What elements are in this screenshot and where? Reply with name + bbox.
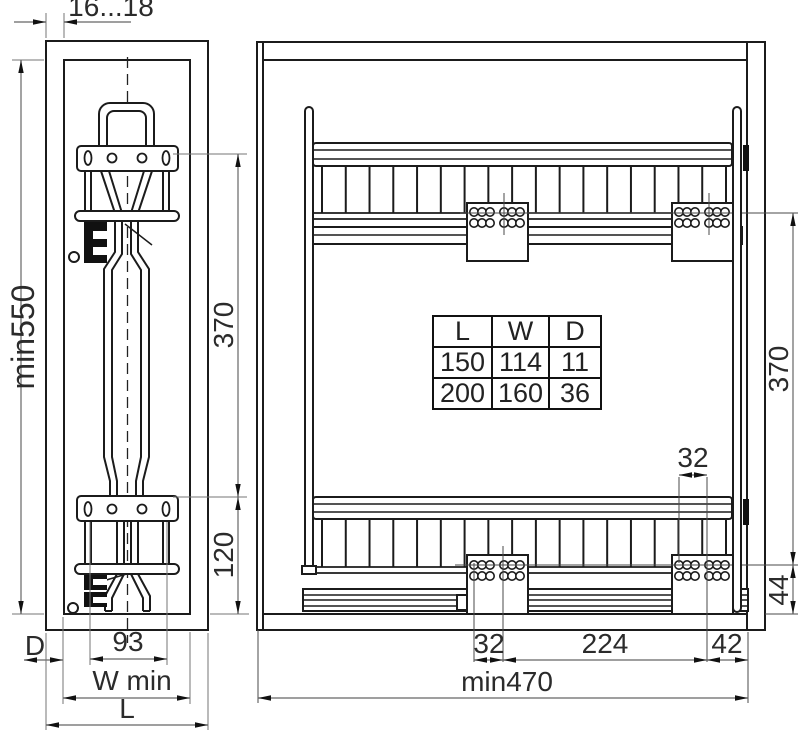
dim-min-depth: min470	[461, 666, 553, 697]
upper-rail-bracket	[84, 222, 107, 263]
size-table-cell: 160	[493, 379, 550, 408]
dim-runner-distance: 370	[763, 346, 794, 393]
dim-length-label: L	[119, 693, 135, 724]
upper-mounting-plate	[77, 146, 178, 171]
size-table-header-l: L	[434, 317, 493, 348]
technical-drawing-page: 16...18 min550 370 120 93 D	[0, 0, 800, 730]
rear-frame-post	[733, 107, 741, 612]
dim-panel-thickness: 16...18	[68, 0, 154, 22]
dim-min-width: W min	[92, 665, 171, 696]
dim-depth-label: D	[25, 630, 45, 661]
size-table-cell: 36	[550, 379, 600, 408]
dim-rear-hole-pitch: 32	[677, 442, 708, 473]
dim-lower-bracket-distance: 120	[208, 532, 239, 579]
front-frame-post	[305, 107, 313, 570]
dim-min-height: min550	[5, 285, 41, 390]
size-table-cell: 200	[434, 379, 493, 408]
dim-bracket-hole-spacing: 93	[112, 626, 143, 657]
size-table-cell: 150	[434, 348, 493, 379]
dim-bottom-offset: 44	[763, 574, 794, 605]
dim-front-hole-pitch: 32	[473, 628, 504, 659]
size-table-cell: 114	[493, 348, 550, 379]
lower-mounting-plate	[77, 496, 178, 521]
upper-rail-wall-fixing	[743, 145, 749, 171]
dim-upper-bracket-distance: 370	[208, 302, 239, 349]
dim-hole-span: 224	[582, 628, 629, 659]
lower-rail-wall-fixing	[743, 499, 749, 525]
technical-drawing-svg: 16...18 min550 370 120 93 D	[0, 0, 800, 730]
size-table-header-w: W	[493, 317, 550, 348]
dim-rear-offset: 42	[711, 628, 742, 659]
size-table: L W D 150 114 11 200 160 36	[432, 315, 602, 410]
size-table-cell: 11	[550, 348, 600, 379]
left-view-front: 16...18 min550 370 120 93 D	[5, 0, 249, 730]
size-table-header-d: D	[550, 317, 600, 348]
